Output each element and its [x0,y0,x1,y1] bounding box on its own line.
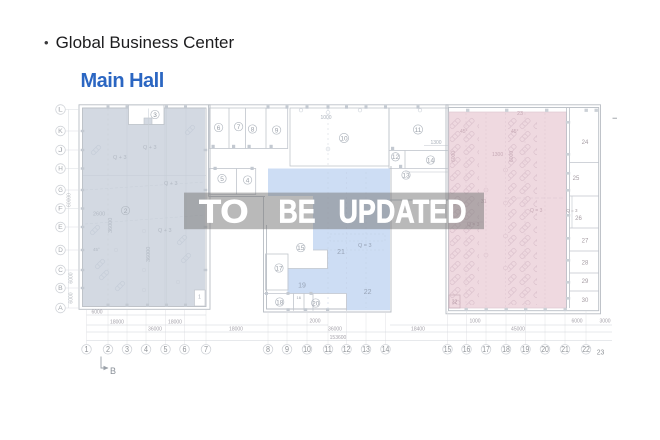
svg-text:18000: 18000 [110,320,124,326]
svg-text:2: 2 [124,208,128,215]
svg-text:45°: 45° [460,129,468,135]
svg-text:6: 6 [183,345,187,354]
svg-text:2: 2 [106,345,110,354]
svg-text:1000: 1000 [469,319,480,325]
svg-text:36000: 36000 [108,218,114,233]
svg-text:Q = 3: Q = 3 [530,208,543,214]
svg-text:36000: 36000 [148,327,162,333]
svg-text:21: 21 [561,345,569,354]
svg-text:20: 20 [541,345,549,354]
svg-text:K: K [58,128,63,135]
svg-text:Q + 3: Q + 3 [164,181,178,187]
svg-text:32: 32 [452,300,458,306]
svg-text:30: 30 [582,298,589,304]
svg-text:Q + 3: Q + 3 [143,145,157,151]
svg-text:45°: 45° [93,247,100,252]
svg-text:J: J [58,147,63,154]
svg-text:16: 16 [463,345,471,354]
svg-text:6000: 6000 [91,310,102,316]
svg-text:23: 23 [597,348,605,357]
svg-text:3: 3 [153,112,157,119]
svg-text:7: 7 [204,345,208,354]
svg-text:G: G [58,187,63,194]
svg-text:8: 8 [251,126,255,133]
svg-text:9: 9 [285,345,289,354]
svg-text:12: 12 [343,345,351,354]
svg-text:Q + 3: Q + 3 [113,155,127,161]
svg-text:22: 22 [582,345,590,354]
svg-text:17: 17 [275,265,283,272]
svg-text:Q = 3: Q = 3 [566,208,578,213]
svg-text:1300: 1300 [492,152,503,158]
svg-text:45°: 45° [511,129,519,135]
svg-text:19: 19 [298,283,306,290]
svg-text:7: 7 [237,124,241,131]
svg-text:2600: 2600 [93,212,105,218]
svg-text:18000: 18000 [229,327,243,333]
svg-text:24: 24 [582,140,589,146]
svg-text:29: 29 [582,279,589,285]
svg-text:3: 3 [125,345,129,354]
svg-text:6000: 6000 [69,292,75,303]
svg-text:18: 18 [502,345,510,354]
svg-text:11: 11 [415,127,422,134]
svg-text:36000: 36000 [146,247,152,262]
svg-text:B: B [110,366,116,376]
svg-text:3000: 3000 [599,319,610,325]
svg-text:1: 1 [85,345,89,354]
svg-text:27: 27 [582,239,589,245]
svg-text:15: 15 [444,345,452,354]
svg-text:23: 23 [517,111,523,117]
svg-text:21: 21 [337,249,345,256]
svg-text:6000: 6000 [69,272,75,283]
svg-text:18: 18 [276,299,284,306]
svg-text:36000: 36000 [328,327,342,333]
svg-text:18400: 18400 [411,327,425,333]
svg-text:L: L [58,107,63,114]
svg-text:22: 22 [364,289,372,296]
svg-text:8: 8 [266,345,270,354]
svg-text:153600: 153600 [330,335,347,341]
svg-text:1: 1 [198,295,201,301]
svg-text:1300: 1300 [430,140,441,146]
svg-text:5: 5 [164,345,169,354]
svg-text:1000: 1000 [320,115,331,121]
svg-text:6000: 6000 [509,151,515,162]
svg-text:Q + 3: Q + 3 [158,228,172,234]
svg-text:14: 14 [427,157,435,164]
svg-text:45000: 45000 [511,327,525,333]
svg-text:D: D [58,247,63,254]
svg-text:6000: 6000 [451,151,457,162]
svg-text:B: B [58,285,63,292]
svg-text:BE: BE [279,193,316,229]
svg-text:19: 19 [522,345,530,354]
svg-text:C: C [58,267,63,274]
svg-text:2000: 2000 [309,319,320,325]
svg-text:11: 11 [324,345,332,354]
svg-text:UPDATED: UPDATED [339,193,467,229]
svg-text:10: 10 [340,135,348,142]
svg-text:14: 14 [382,345,390,354]
svg-text:60000: 60000 [66,193,72,207]
svg-text:12: 12 [392,154,400,161]
svg-text:TO: TO [199,193,249,229]
svg-text:13: 13 [402,172,410,179]
svg-text:15: 15 [297,245,305,252]
svg-text:17: 17 [482,345,490,354]
svg-text:E: E [58,224,63,231]
svg-text:6000: 6000 [571,319,582,325]
svg-text:A: A [58,305,63,312]
svg-text:5: 5 [220,176,224,183]
svg-text:4: 4 [144,345,149,354]
svg-text:26: 26 [575,216,582,222]
svg-text:10: 10 [303,345,311,354]
svg-text:9: 9 [275,127,279,134]
svg-text:4: 4 [246,177,250,184]
svg-text:25: 25 [573,176,580,182]
svg-text:13: 13 [362,345,370,354]
svg-text:H: H [58,166,63,173]
svg-text:6: 6 [217,125,221,132]
svg-text:28: 28 [582,261,589,267]
svg-text:F: F [58,206,63,213]
svg-text:Q = 3: Q = 3 [358,243,372,249]
svg-text:18000: 18000 [168,320,182,326]
svg-text:16: 16 [296,295,301,300]
svg-text:20: 20 [312,300,320,307]
